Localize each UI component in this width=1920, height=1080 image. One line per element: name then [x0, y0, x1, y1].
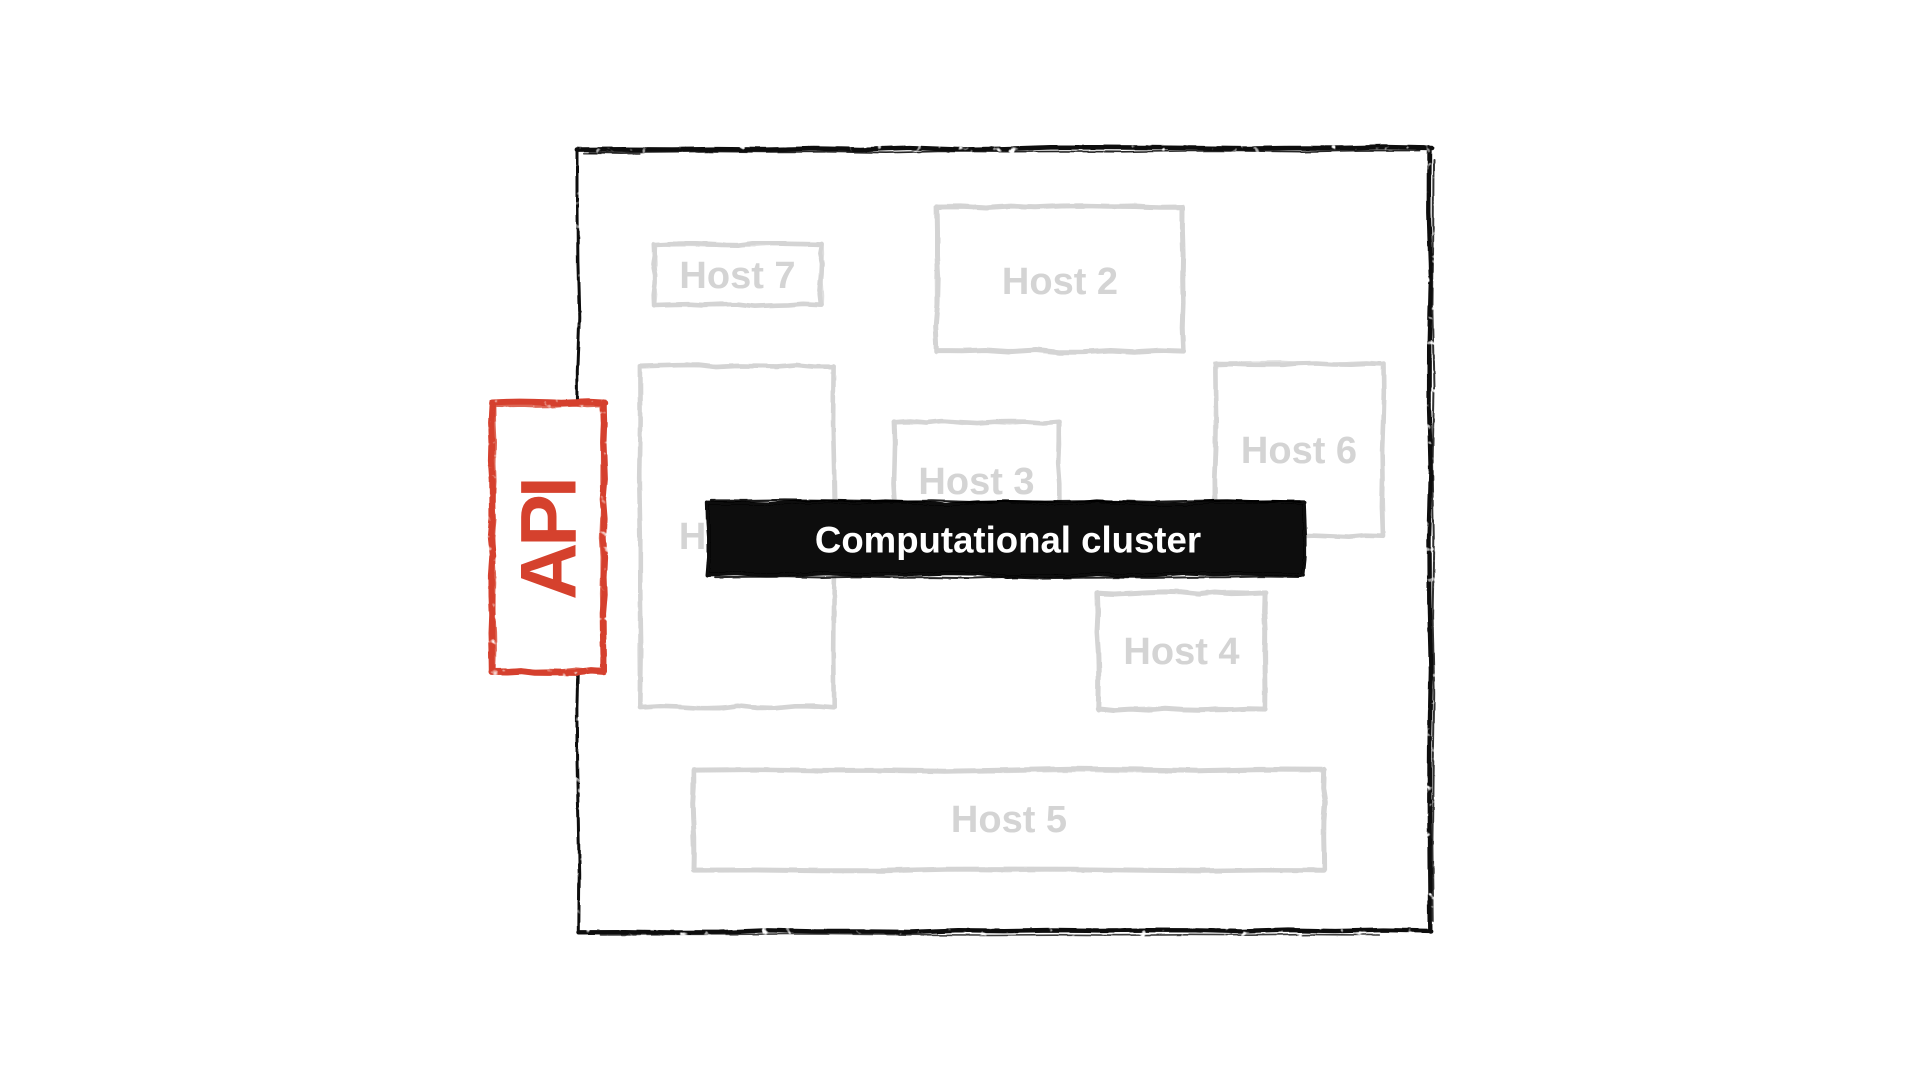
svg-text:Host 4: Host 4 — [1123, 631, 1239, 673]
svg-text:Host 3: Host 3 — [918, 461, 1034, 503]
svg-text:Host 6: Host 6 — [1241, 430, 1357, 472]
svg-text:Host 2: Host 2 — [1002, 261, 1118, 303]
svg-text:API: API — [504, 480, 593, 600]
svg-text:Host 5: Host 5 — [951, 799, 1067, 841]
svg-text:Computational cluster: Computational cluster — [815, 520, 1201, 561]
svg-text:Host 7: Host 7 — [679, 255, 795, 297]
